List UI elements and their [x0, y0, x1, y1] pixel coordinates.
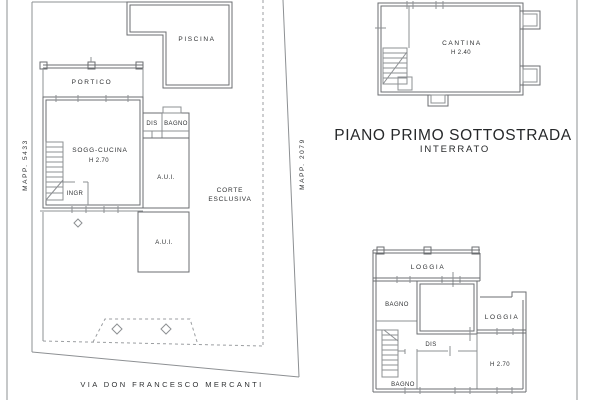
sheet-frame [7, 0, 577, 400]
soggiorno-label: SOGG-CUCINA [72, 147, 127, 154]
portico-outline [40, 57, 143, 97]
street-name-label: VIA DON FRANCESCO MERCANTI [80, 380, 263, 389]
mapp-left-label: MAPP. 5433 [22, 139, 29, 191]
corte-label-line1: CORTE [217, 187, 244, 194]
soggiorno-height-label: H 2.70 [89, 158, 109, 164]
aui-upper-label: A.U.I. [157, 175, 174, 181]
plan-drawing: PISCINA PORTICO SOGG-CUCINA H 2.70 [0, 0, 600, 400]
ff-bagno-top-walls [376, 321, 417, 330]
ff-room-height-label: H 2.70 [490, 362, 510, 368]
ff-loggia-top-label: LOGGIA [411, 264, 446, 271]
ff-dis-walls [398, 346, 477, 356]
site-plan: PISCINA PORTICO SOGG-CUCINA H 2.70 [22, 0, 306, 389]
ff-dis-label: DIS [425, 342, 436, 348]
dis-label: DIS [146, 121, 157, 127]
cantina-height-label: H 2.40 [451, 50, 471, 56]
basement-plan: CANTINA H 2.40 PIANO PRIMO SOTTOSTRADA I… [334, 1, 571, 155]
courtyard-markers [74, 219, 171, 334]
ff-bagno-top-label: BAGNO [385, 302, 409, 308]
house-walls [40, 95, 143, 341]
stairs-hatch [46, 142, 63, 200]
aui-upper-outline [143, 138, 189, 208]
ff-loggia-right-walls [477, 292, 526, 392]
cantina-label: CANTINA [442, 40, 482, 47]
corte-label-line2: ESCLUSIVA [208, 196, 251, 203]
ingresso-label: INGR [67, 191, 84, 197]
portico-label: PORTICO [72, 79, 113, 86]
cantina-stairs-hatch [383, 48, 412, 90]
piscina-label: PISCINA [178, 36, 215, 43]
aui-lower-label: A.U.I. [155, 240, 172, 246]
floor-plan-sheet: PISCINA PORTICO SOGG-CUCINA H 2.70 [0, 0, 600, 400]
mapp-right-label: MAPP. 2079 [299, 138, 306, 190]
courtyard-dashed-boundary [43, 0, 263, 346]
plan-title: PIANO PRIMO SOTTOSTRADA [334, 127, 571, 144]
ff-central-room-walls [417, 281, 477, 341]
ff-stairs-hatch [382, 330, 398, 377]
bagno-label: BAGNO [164, 121, 188, 127]
plan-subtitle: INTERRATO [420, 144, 490, 155]
first-floor-plan: LOGGIA BAGNO LOGGIA DIS [373, 247, 526, 394]
ff-bagno-bottom-label: BAGNO [391, 382, 415, 388]
ff-loggia-right-label: LOGGIA [485, 314, 520, 321]
